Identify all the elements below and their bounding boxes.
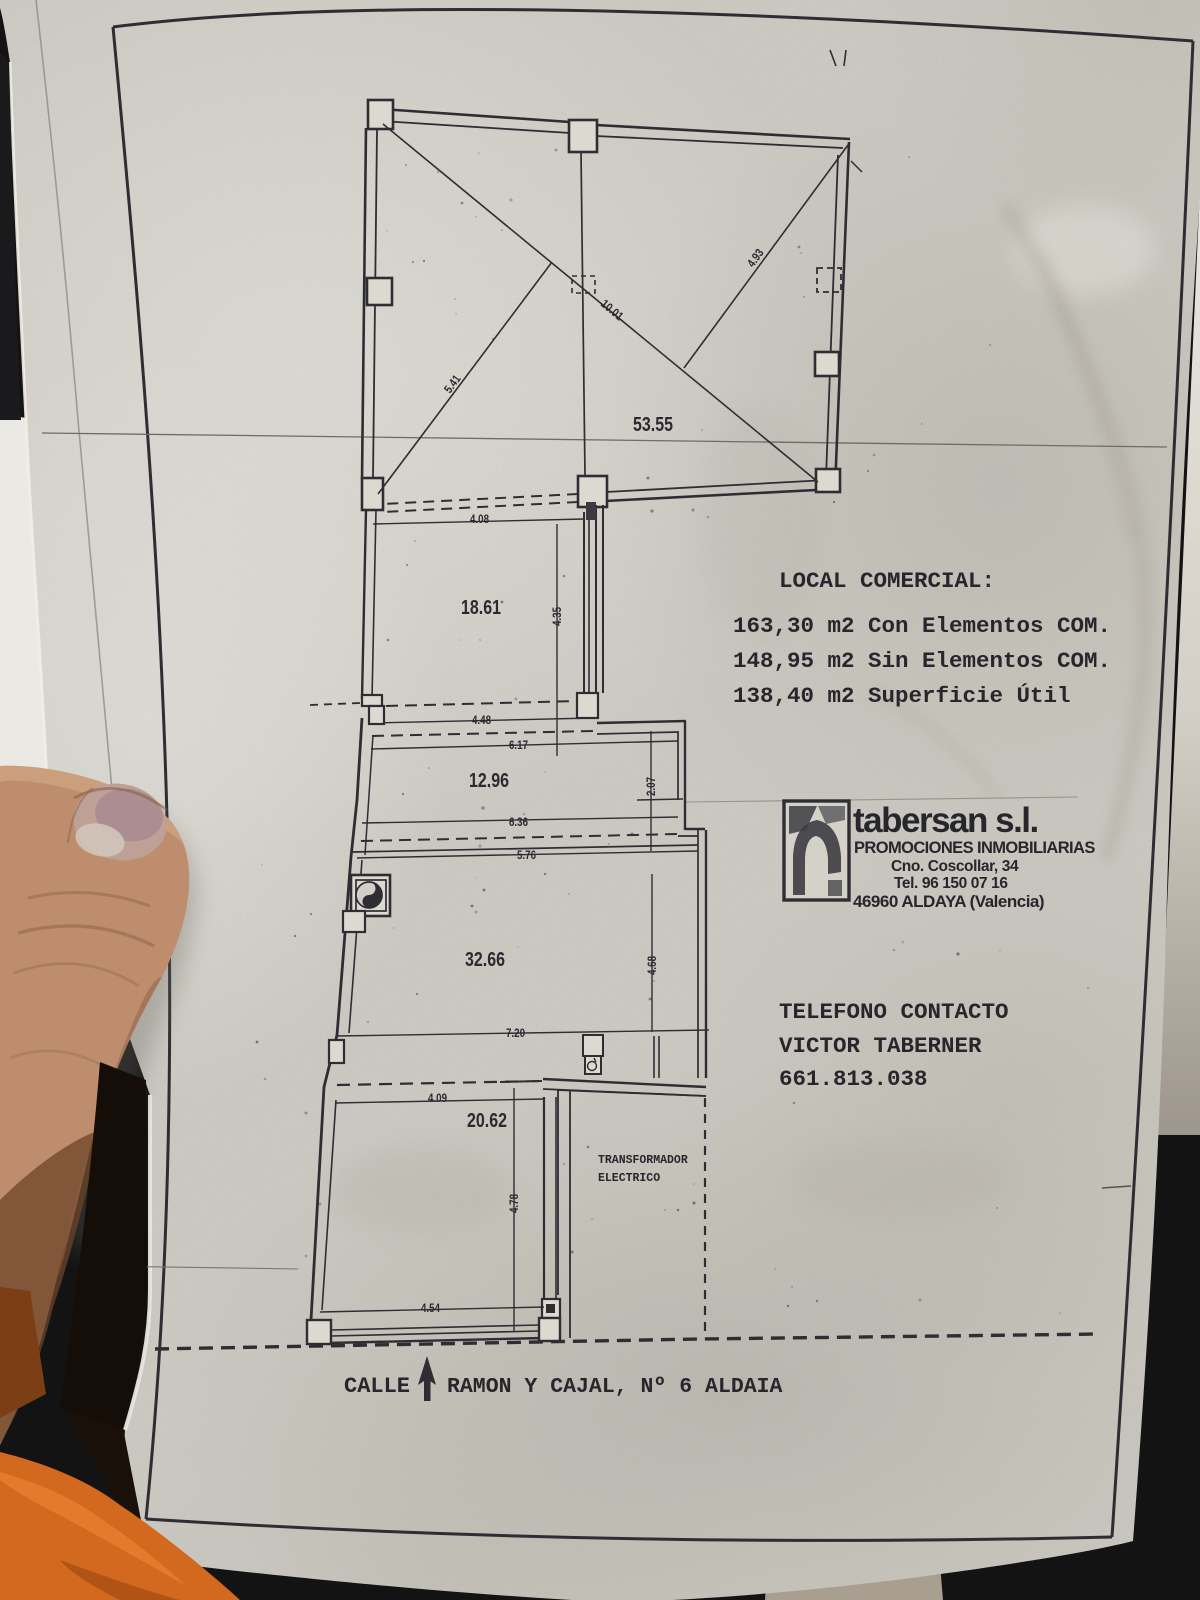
svg-text:4.09: 4.09 [428, 1091, 447, 1105]
svg-text:TELEFONO CONTACTO: TELEFONO CONTACTO [779, 999, 1009, 1025]
svg-text:32.66: 32.66 [465, 949, 505, 971]
svg-text:4.54: 4.54 [421, 1301, 440, 1315]
svg-text:53.55: 53.55 [633, 414, 673, 436]
svg-text:4.68: 4.68 [645, 956, 659, 975]
svg-text:6.17: 6.17 [509, 738, 528, 752]
svg-text:Cno. Coscollar, 34: Cno. Coscollar, 34 [891, 858, 1019, 875]
svg-text:12.96: 12.96 [469, 770, 509, 792]
svg-text:5.76: 5.76 [517, 848, 536, 862]
svg-text:CALLE: CALLE [344, 1374, 410, 1399]
svg-text:7.20: 7.20 [506, 1026, 525, 1040]
svg-text:661.813.038: 661.813.038 [779, 1066, 928, 1092]
svg-text:20.62: 20.62 [467, 1110, 507, 1132]
svg-text:138,40 m2 Superficie Útil: 138,40 m2 Superficie Útil [733, 683, 1071, 709]
svg-text:RAMON Y CAJAL, Nº 6 ALDAIA: RAMON Y CAJAL, Nº 6 ALDAIA [447, 1375, 783, 1399]
svg-text:Tel. 96 150 07 16: Tel. 96 150 07 16 [894, 875, 1008, 892]
svg-text:163,30 m2 Con Elementos COM.: 163,30 m2 Con Elementos COM. [733, 613, 1111, 639]
svg-text:2.07: 2.07 [644, 777, 658, 796]
svg-text:4.08: 4.08 [470, 512, 489, 526]
svg-text:4.78: 4.78 [507, 1194, 521, 1213]
svg-text:46960 ALDAYA (Valencia): 46960 ALDAYA (Valencia) [853, 892, 1044, 911]
svg-text:tabersan s.l.: tabersan s.l. [853, 801, 1038, 840]
svg-text:PROMOCIONES INMOBILIARIAS: PROMOCIONES INMOBILIARIAS [854, 839, 1095, 857]
svg-text:148,95 m2 Sin Elementos COM.: 148,95 m2 Sin Elementos COM. [733, 648, 1111, 674]
svg-text:TRANSFORMADOR: TRANSFORMADOR [598, 1154, 688, 1167]
svg-text:4.48: 4.48 [472, 713, 491, 727]
svg-text:LOCAL COMERCIAL:: LOCAL COMERCIAL: [779, 568, 995, 594]
svg-text:4.35: 4.35 [550, 607, 564, 626]
svg-text:VICTOR TABERNER: VICTOR TABERNER [779, 1033, 982, 1059]
svg-text:18.61: 18.61 [461, 597, 501, 619]
svg-text:6.36: 6.36 [509, 815, 528, 829]
svg-text:ELECTRICO: ELECTRICO [598, 1172, 660, 1185]
